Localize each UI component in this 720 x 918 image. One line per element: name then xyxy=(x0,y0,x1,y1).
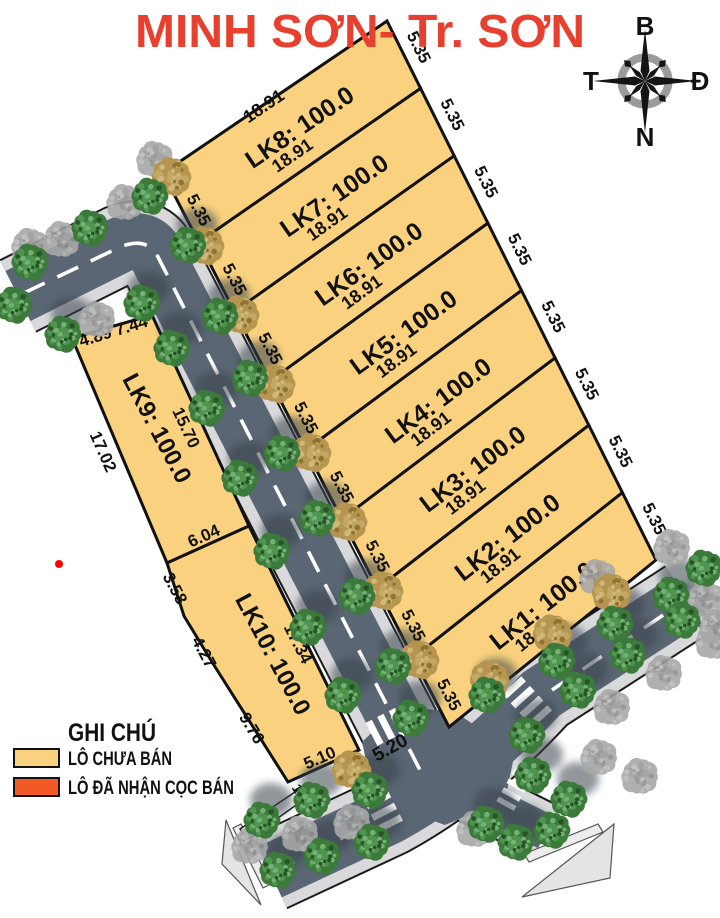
svg-text:GHI CHÚ: GHI CHÚ xyxy=(68,717,156,747)
svg-text:T: T xyxy=(583,66,599,96)
svg-text:N: N xyxy=(636,122,655,152)
svg-text:MINH SƠN- Tr. SƠN: MINH SƠN- Tr. SƠN xyxy=(135,5,585,57)
svg-text:B: B xyxy=(636,11,655,41)
svg-text:Đ: Đ xyxy=(691,66,710,96)
svg-text:LÔ ĐÃ NHẬN CỌC BÁN: LÔ ĐÃ NHẬN CỌC BÁN xyxy=(68,777,234,799)
svg-text:LÔ CHƯA BÁN: LÔ CHƯA BÁN xyxy=(68,748,172,770)
